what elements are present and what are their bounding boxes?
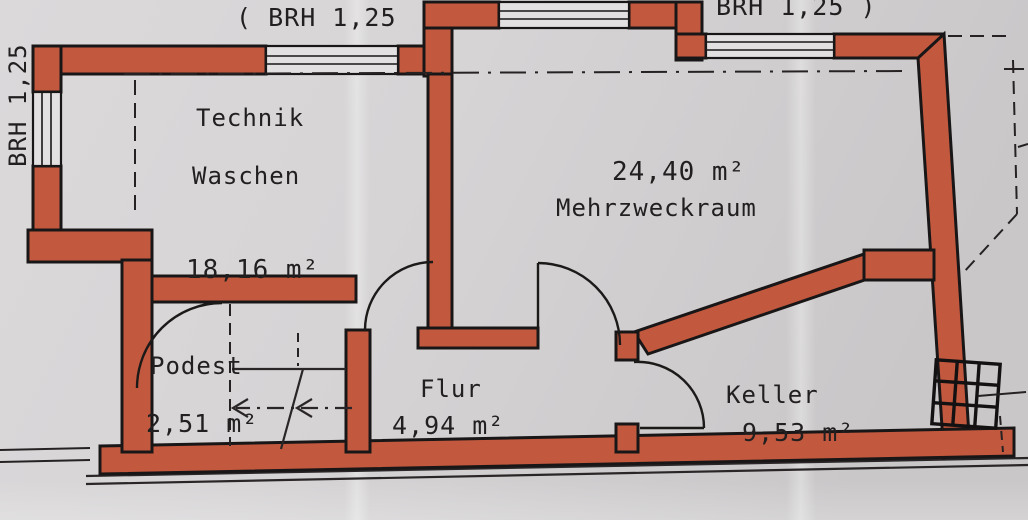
window-symbol-top-right (706, 34, 834, 58)
brh-label-left: BRH 1,25 (4, 43, 32, 167)
room-area-technik: 18,16 m² (186, 255, 319, 285)
room-area-mehrzweckraum: 24,40 m² (612, 157, 745, 187)
room-area-keller: 9,53 m² (742, 418, 854, 447)
room-area-podest: 2,51 m² (146, 409, 258, 438)
room-name-podest: Podest (150, 352, 243, 380)
floor-plan-photo: ( BRH 1,25 BRH 1,25 ) BRH 1,25 Technik W… (0, 0, 1028, 520)
window-symbol-top-left (266, 46, 398, 74)
room-area-flur: 4,94 m² (392, 411, 504, 440)
room-name-keller: Keller (726, 381, 819, 409)
window-symbol-left (33, 92, 61, 166)
window-symbol-top-middle (499, 2, 629, 28)
paper-bottom-edge (0, 480, 1028, 520)
room-name-technik: Technik (196, 104, 304, 132)
brh-label-top-left: ( BRH 1,25 (236, 3, 397, 32)
brh-label-top-right: BRH 1,25 ) (716, 0, 877, 21)
room-name-mehrzweckraum: Mehrzweckraum (556, 194, 757, 222)
floor-plan: ( BRH 1,25 BRH 1,25 ) BRH 1,25 Technik W… (0, 0, 1028, 520)
room-name-flur: Flur (420, 375, 482, 403)
room-name-waschen: Waschen (192, 162, 300, 190)
